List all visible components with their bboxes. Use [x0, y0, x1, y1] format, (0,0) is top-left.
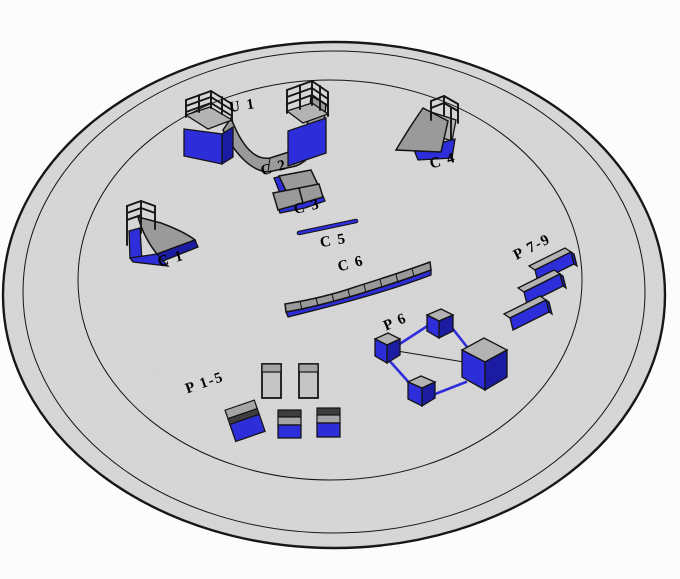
p15-cube-2: [278, 410, 301, 438]
skatepark-3d-plan: U 1 C 1: [0, 0, 680, 579]
p15-cube-3: [317, 408, 340, 437]
u1-left-base-side: [222, 127, 233, 164]
p6-cube-top: [427, 309, 453, 338]
p15-slab-1: [262, 364, 281, 398]
p15-slab-2: [299, 364, 318, 398]
